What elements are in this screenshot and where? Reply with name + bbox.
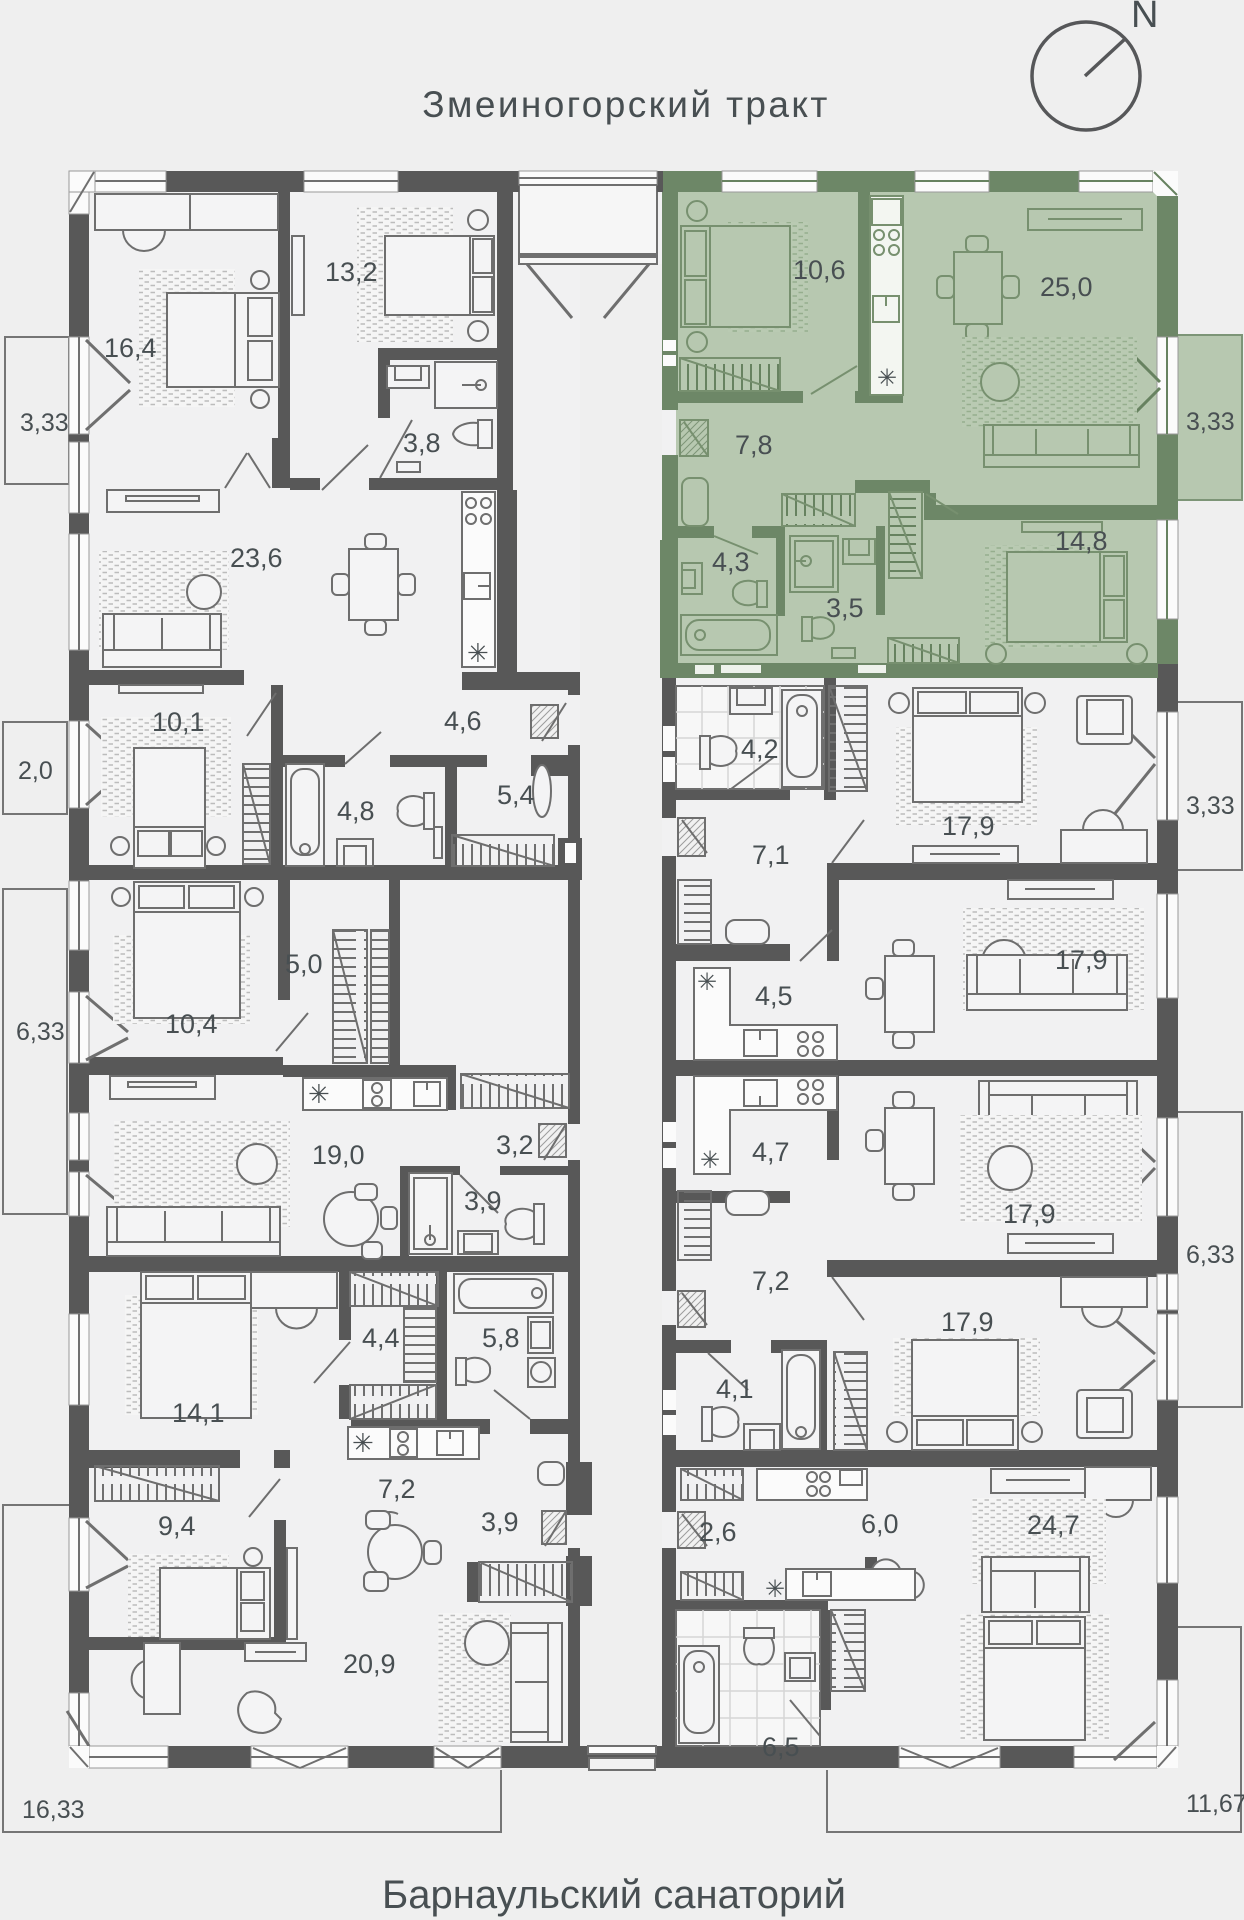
svg-text:3,33: 3,33 xyxy=(1186,408,1235,436)
svg-text:17,9: 17,9 xyxy=(941,1307,994,1337)
svg-text:4,7: 4,7 xyxy=(752,1137,790,1167)
svg-text:19,0: 19,0 xyxy=(312,1140,365,1170)
svg-text:3,8: 3,8 xyxy=(403,428,441,458)
svg-text:6,33: 6,33 xyxy=(1186,1241,1235,1269)
svg-text:17,9: 17,9 xyxy=(942,811,995,841)
svg-text:9,4: 9,4 xyxy=(158,1511,196,1541)
svg-text:✳: ✳ xyxy=(765,1576,785,1603)
svg-text:✳: ✳ xyxy=(308,1079,330,1109)
svg-text:25,0: 25,0 xyxy=(1040,272,1093,302)
svg-text:2,6: 2,6 xyxy=(699,1517,737,1547)
svg-text:✳: ✳ xyxy=(467,638,489,668)
svg-text:4,1: 4,1 xyxy=(716,1374,754,1404)
svg-text:14,8: 14,8 xyxy=(1055,526,1108,556)
svg-text:7,2: 7,2 xyxy=(752,1266,790,1296)
svg-text:13,2: 13,2 xyxy=(325,257,378,287)
svg-text:6,5: 6,5 xyxy=(762,1732,800,1762)
svg-text:2,0: 2,0 xyxy=(18,757,53,785)
svg-text:✳: ✳ xyxy=(697,969,717,996)
svg-text:5,4: 5,4 xyxy=(497,780,535,810)
svg-text:3,33: 3,33 xyxy=(20,409,69,437)
svg-text:17,9: 17,9 xyxy=(1003,1199,1056,1229)
svg-text:20,9: 20,9 xyxy=(343,1649,396,1679)
svg-text:7,1: 7,1 xyxy=(752,840,790,870)
svg-text:Барнаульский санаторий: Барнаульский санаторий xyxy=(382,1873,846,1917)
svg-text:5,8: 5,8 xyxy=(482,1323,520,1353)
svg-text:7,2: 7,2 xyxy=(378,1474,416,1504)
svg-text:6,33: 6,33 xyxy=(16,1018,65,1046)
svg-text:3,9: 3,9 xyxy=(464,1186,502,1216)
svg-text:✳: ✳ xyxy=(877,365,897,392)
svg-text:17,9: 17,9 xyxy=(1055,945,1108,975)
svg-text:11,67: 11,67 xyxy=(1186,1790,1244,1818)
svg-text:3,33: 3,33 xyxy=(1186,792,1235,820)
svg-text:N: N xyxy=(1131,0,1158,36)
svg-text:4,5: 4,5 xyxy=(755,981,793,1011)
svg-text:4,6: 4,6 xyxy=(444,706,482,736)
svg-text:10,6: 10,6 xyxy=(793,255,846,285)
svg-text:5,0: 5,0 xyxy=(285,949,323,979)
svg-text:10,1: 10,1 xyxy=(152,707,205,737)
svg-text:4,3: 4,3 xyxy=(712,547,750,577)
svg-text:3,9: 3,9 xyxy=(481,1507,519,1537)
svg-text:10,4: 10,4 xyxy=(165,1009,218,1039)
svg-text:14,1: 14,1 xyxy=(172,1398,225,1428)
svg-text:4,2: 4,2 xyxy=(741,734,779,764)
svg-text:4,8: 4,8 xyxy=(337,796,375,826)
svg-text:7,8: 7,8 xyxy=(735,430,773,460)
svg-text:6,0: 6,0 xyxy=(861,1509,899,1539)
svg-text:16,33: 16,33 xyxy=(22,1796,85,1824)
svg-text:16,4: 16,4 xyxy=(104,333,157,363)
svg-text:3,2: 3,2 xyxy=(496,1130,534,1160)
svg-text:24,7: 24,7 xyxy=(1027,1510,1080,1540)
svg-text:4,4: 4,4 xyxy=(362,1323,400,1353)
svg-text:3,5: 3,5 xyxy=(826,593,864,623)
svg-text:Змеиногорский тракт: Змеиногорский тракт xyxy=(422,84,829,125)
svg-text:23,6: 23,6 xyxy=(230,543,283,573)
svg-text:✳: ✳ xyxy=(352,1428,374,1458)
svg-text:✳: ✳ xyxy=(700,1147,720,1174)
